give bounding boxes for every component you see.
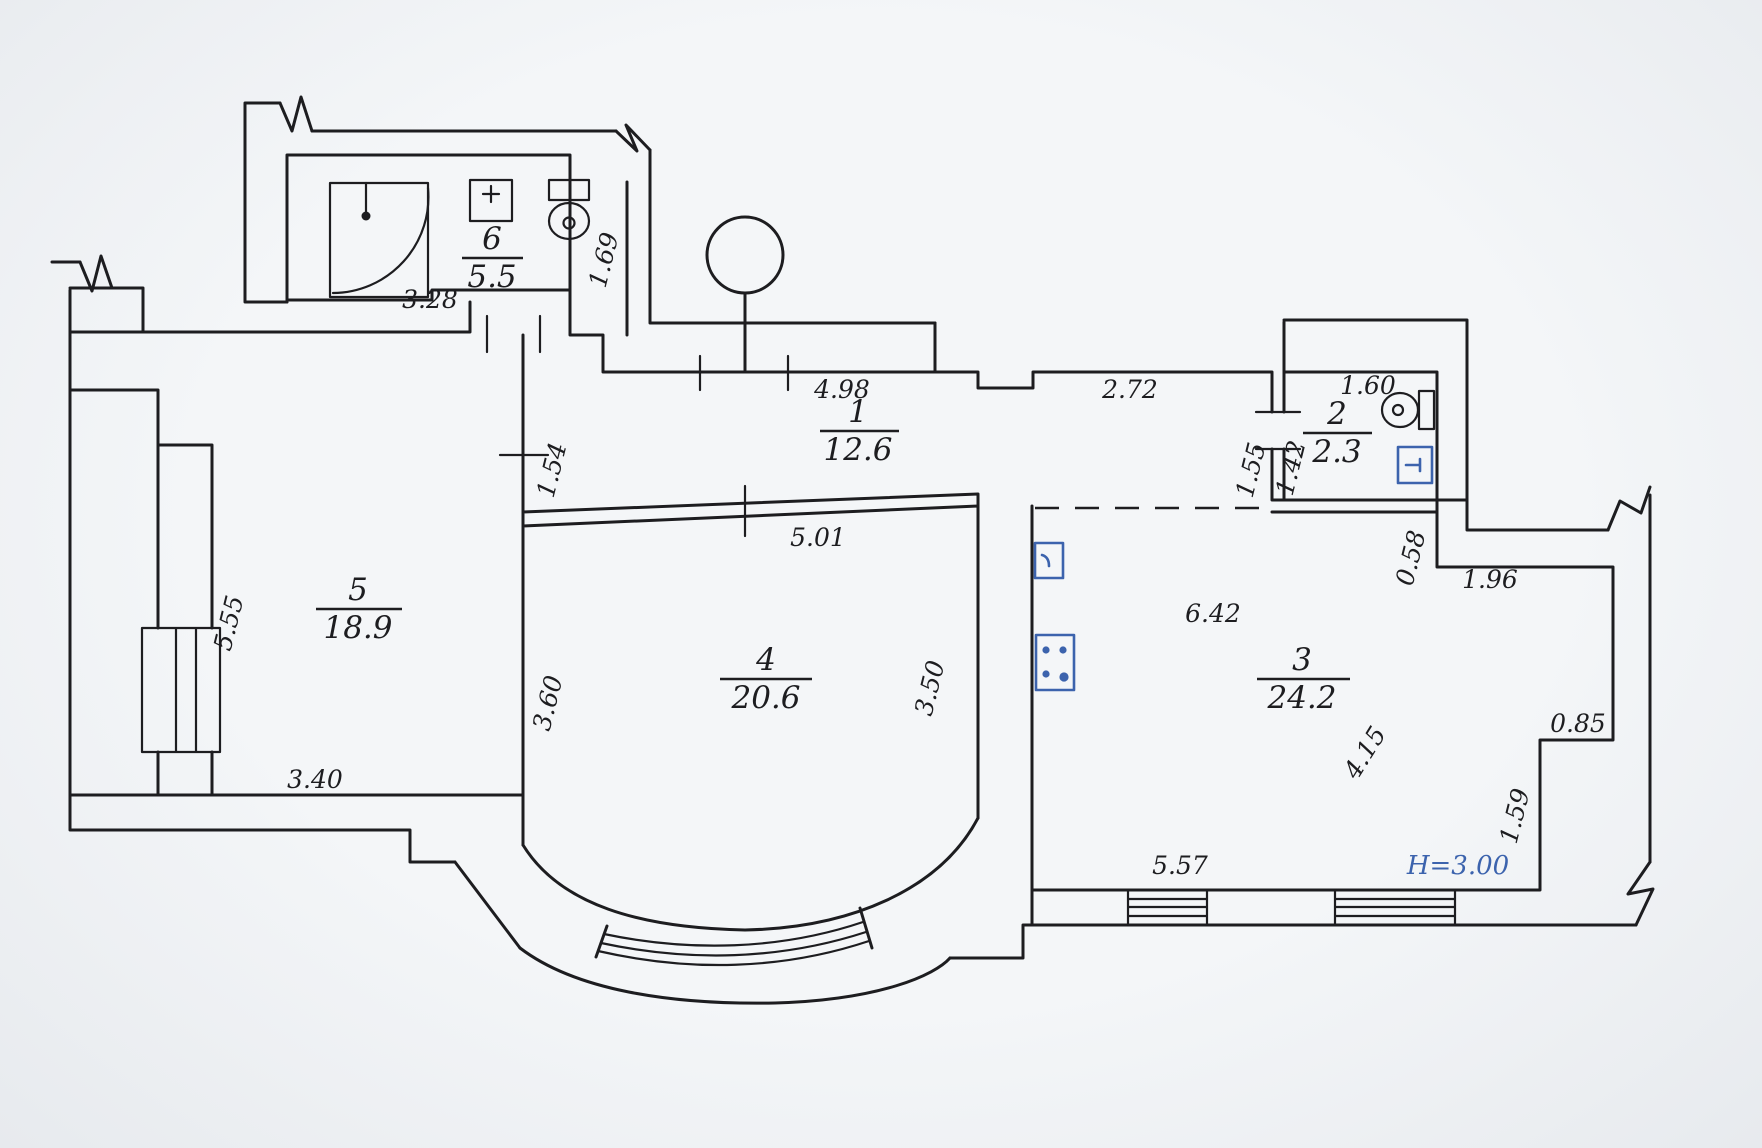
washbasin-symbol <box>470 180 512 221</box>
column-symbol <box>707 217 783 370</box>
shower-symbol <box>330 183 428 297</box>
dimension-3-40: 3.40 <box>287 765 343 794</box>
bay-window-icon <box>520 818 978 1003</box>
dimension-1-55: 1.55 <box>1230 439 1272 500</box>
dimension-5-01: 5.01 <box>790 523 846 552</box>
dimension-1-60: 1.60 <box>1340 371 1396 400</box>
washbasin-tap-icon <box>483 186 499 202</box>
room-label-5: 5 18.9 <box>316 572 402 646</box>
floor-plan-canvas: 6 5.5 1 12.6 2 2.3 3 24.2 4 20.6 5 18.9 … <box>0 0 1762 1148</box>
room-2-area: 2.3 <box>1311 434 1361 470</box>
dimension-5-55: 5.55 <box>208 592 250 653</box>
kitchen-sink-tap-icon <box>1042 555 1049 566</box>
toilet-drain-icon <box>1393 405 1403 415</box>
room-6-area: 5.5 <box>467 259 516 295</box>
room-6-number: 6 <box>482 221 502 257</box>
room-label-6: 6 5.5 <box>462 221 523 295</box>
dimension-6-42: 6.42 <box>1185 599 1241 628</box>
dimension-ticks <box>487 316 1300 536</box>
burner-dot <box>1059 672 1068 681</box>
dimension-1-59: 1.59 <box>1494 785 1536 846</box>
room-4-number: 4 <box>755 642 776 678</box>
dimension-3-60: 3.60 <box>527 672 569 733</box>
dimension-1-69: 1.69 <box>583 229 625 290</box>
dimension-3-28: 3.28 <box>402 285 458 314</box>
dimension-3-50: 3.50 <box>909 657 951 718</box>
toilet-tank-icon <box>1419 391 1434 429</box>
room-3-number: 3 <box>1292 642 1312 678</box>
kitchen-sink-symbol <box>1035 543 1063 578</box>
windows-room3-icon <box>1128 890 1455 925</box>
dimension-0-58: 0.58 <box>1390 527 1432 588</box>
dimension-4-98: 4.98 <box>813 375 870 404</box>
water-heater-symbol <box>1398 447 1432 483</box>
shower-door-arc-icon <box>333 188 428 293</box>
room-5-number: 5 <box>348 572 368 608</box>
floor-plan: 6 5.5 1 12.6 2 2.3 3 24.2 4 20.6 5 18.9 … <box>0 0 1762 1148</box>
column-circle-icon <box>707 217 783 293</box>
room-label-4: 4 20.6 <box>720 642 812 716</box>
dimension-4-15: 4.15 <box>1337 721 1392 784</box>
dimension-1-42: 1.42 <box>1270 437 1312 498</box>
dimension-1-96: 1.96 <box>1462 565 1518 594</box>
dimension-0-85: 0.85 <box>1550 709 1606 738</box>
burner-dot <box>1059 646 1066 653</box>
room-3-area: 24.2 <box>1266 680 1336 716</box>
room-1-area: 12.6 <box>823 432 892 468</box>
room-4-area: 20.6 <box>730 680 800 716</box>
burner-dot <box>1042 670 1049 677</box>
room-label-1: 1 12.6 <box>820 394 899 468</box>
burner-dot <box>1042 646 1049 653</box>
dimension-1-54: 1.54 <box>531 439 573 500</box>
room-label-3: 3 24.2 <box>1257 642 1350 716</box>
room-label-2: 2 2.3 <box>1303 396 1372 470</box>
dimension-5-57: 5.57 <box>1152 851 1208 880</box>
room-5-area: 18.9 <box>323 610 392 646</box>
shower-head-dot <box>362 212 371 221</box>
stove-symbol <box>1036 635 1074 690</box>
ceiling-height-note: H=3.00 <box>1406 851 1509 881</box>
dimension-2-72: 2.72 <box>1101 375 1158 404</box>
stove-box-icon <box>1036 635 1074 690</box>
water-heater-mark <box>1406 459 1420 471</box>
room-2-number: 2 <box>1326 396 1347 432</box>
